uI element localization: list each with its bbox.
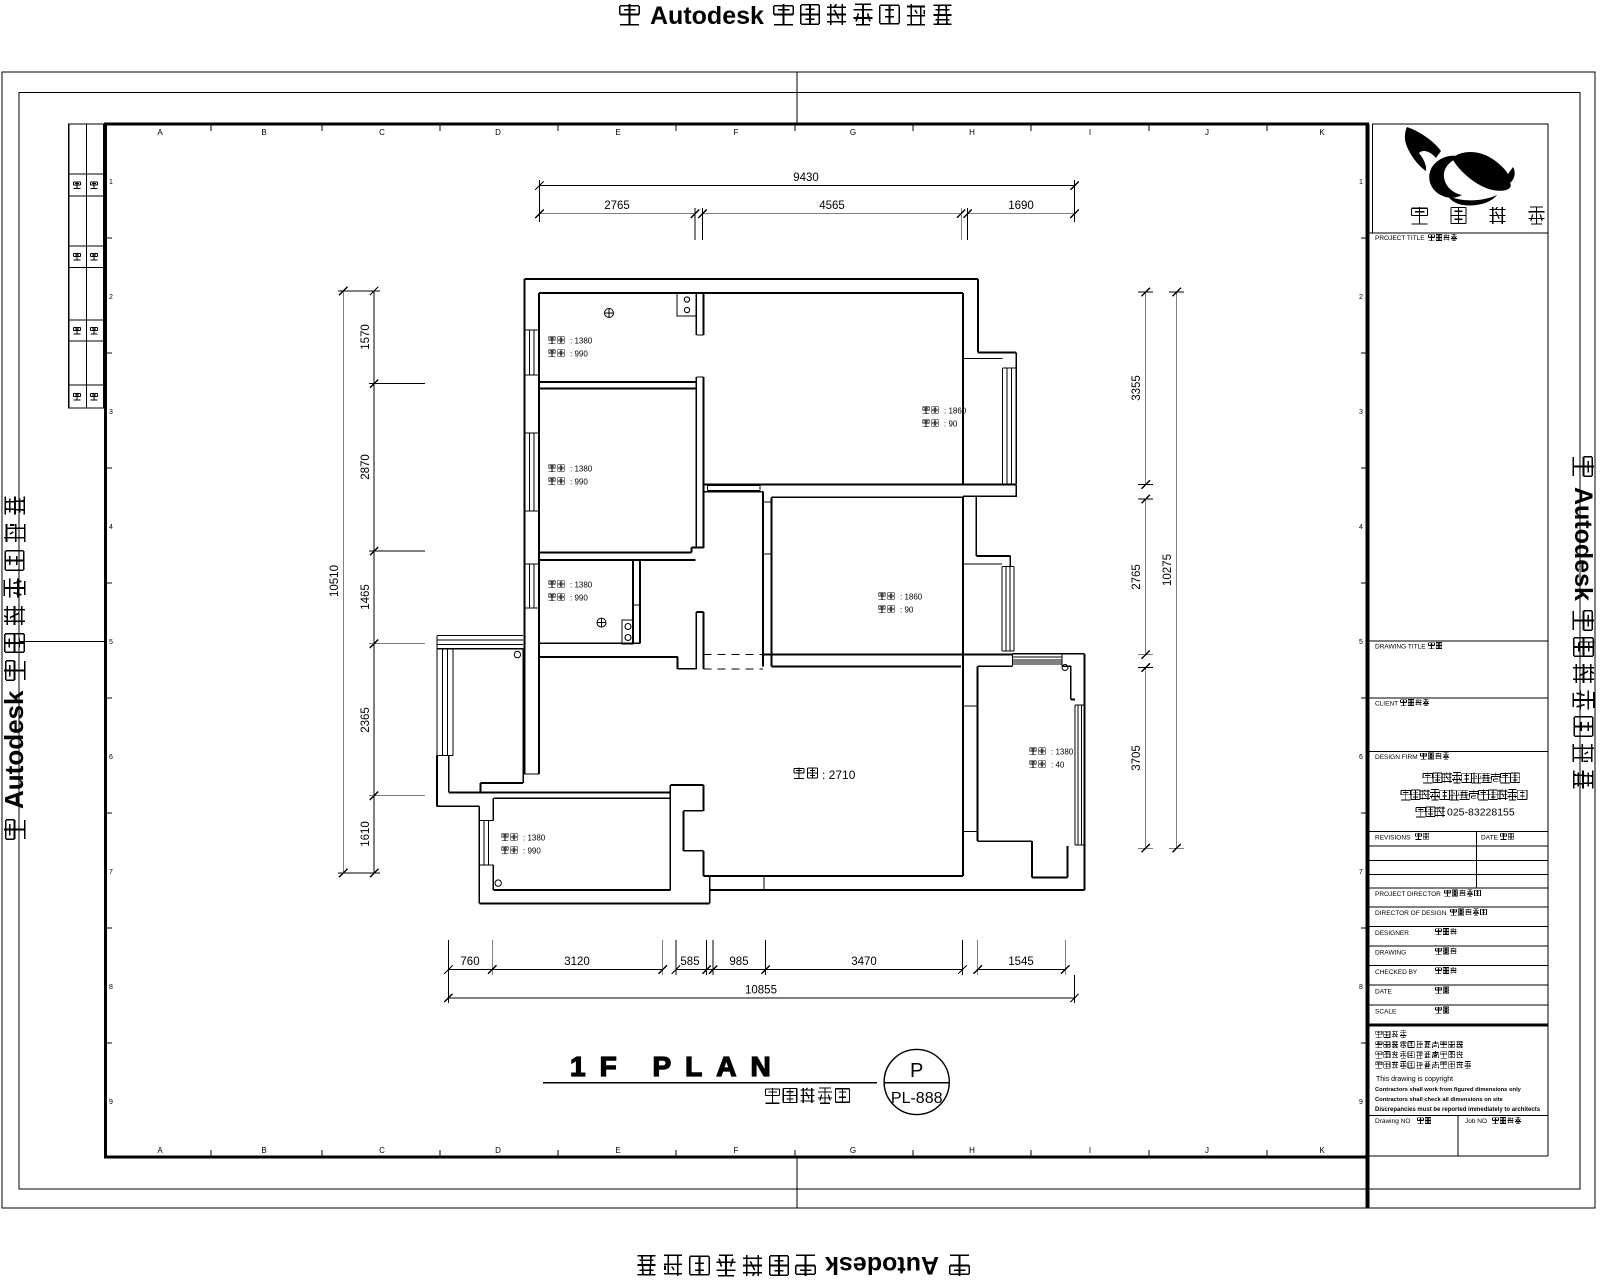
svg-text:C: C: [379, 128, 385, 137]
svg-text:J: J: [1205, 128, 1209, 137]
svg-text:Autodesk: Autodesk: [1569, 487, 1597, 601]
svg-text:7: 7: [1359, 869, 1363, 876]
svg-text:D: D: [495, 128, 501, 137]
svg-text:B: B: [261, 128, 266, 137]
svg-text:Contractors shall work from fi: Contractors shall work from figured dime…: [1375, 1087, 1522, 1093]
svg-text:E: E: [615, 128, 620, 137]
svg-text:1545: 1545: [1008, 956, 1034, 968]
svg-text:PL-888: PL-888: [891, 1090, 943, 1107]
svg-text:P: P: [910, 1060, 923, 1082]
svg-text:G: G: [850, 128, 856, 137]
svg-text:7: 7: [109, 869, 113, 876]
svg-text:6: 6: [109, 754, 113, 761]
svg-text:F: F: [734, 128, 739, 137]
svg-text:DATE: DATE: [1481, 835, 1499, 842]
svg-text:CLIENT: CLIENT: [1375, 701, 1398, 708]
svg-text:: 1380: : 1380: [1051, 748, 1074, 757]
svg-text:I: I: [1089, 128, 1091, 137]
svg-text:1690: 1690: [1008, 200, 1034, 212]
svg-text:2: 2: [1359, 294, 1363, 301]
svg-text:10855: 10855: [745, 985, 777, 997]
svg-text:10275: 10275: [1162, 554, 1174, 586]
svg-text:This drawing is copyright: This drawing is copyright: [1376, 1076, 1453, 1083]
svg-text:: 1380: : 1380: [570, 465, 593, 474]
svg-text:: 90: : 90: [944, 420, 958, 429]
svg-text:C: C: [379, 1146, 385, 1155]
svg-text:: 990: : 990: [570, 594, 588, 603]
svg-text:6: 6: [1359, 754, 1363, 761]
svg-text:: 40: : 40: [1051, 761, 1065, 770]
svg-text:DRAWING: DRAWING: [1375, 949, 1406, 956]
svg-text:1: 1: [109, 179, 113, 186]
svg-text:: 1380: : 1380: [570, 581, 593, 590]
svg-text:REVISIONS: REVISIONS: [1375, 835, 1411, 842]
svg-text:K: K: [1319, 1146, 1325, 1155]
svg-text:2765: 2765: [1131, 564, 1143, 590]
svg-text:2870: 2870: [360, 454, 372, 480]
svg-text:760: 760: [460, 956, 479, 968]
svg-text:2365: 2365: [360, 707, 372, 733]
svg-text:5: 5: [1359, 639, 1363, 646]
svg-text:9430: 9430: [793, 172, 819, 184]
svg-text:DESIGNER: DESIGNER: [1375, 930, 1409, 937]
svg-text:3705: 3705: [1131, 745, 1143, 771]
svg-text:: 1380: : 1380: [523, 834, 546, 843]
svg-text:DRAWING TITLE: DRAWING TITLE: [1375, 644, 1426, 651]
svg-text:: 1860: : 1860: [944, 407, 967, 416]
svg-text:10510: 10510: [329, 565, 341, 597]
svg-text:3: 3: [109, 409, 113, 416]
svg-text:D: D: [495, 1146, 501, 1155]
svg-text:2765: 2765: [604, 200, 630, 212]
svg-text:5: 5: [109, 639, 113, 646]
svg-text:1610: 1610: [360, 821, 372, 847]
svg-text:PROJECT TITLE: PROJECT TITLE: [1375, 235, 1425, 242]
svg-text:025-83228155: 025-83228155: [1447, 807, 1515, 819]
svg-text:8: 8: [109, 984, 113, 991]
svg-text:J: J: [1205, 1146, 1209, 1155]
svg-text:2: 2: [109, 294, 113, 301]
svg-text:: 990: : 990: [570, 478, 588, 487]
svg-text:4: 4: [1359, 524, 1363, 531]
svg-text:4: 4: [109, 524, 113, 531]
svg-text:3: 3: [1359, 409, 1363, 416]
svg-text:3355: 3355: [1131, 375, 1143, 401]
svg-text:DESIGN FIRM: DESIGN FIRM: [1375, 754, 1418, 761]
svg-text:: 1860: : 1860: [900, 593, 923, 602]
svg-text:G: G: [850, 1146, 856, 1155]
svg-text:4565: 4565: [819, 200, 845, 212]
svg-text:Job NO: Job NO: [1465, 1118, 1487, 1125]
svg-text:1F PLAN: 1F PLAN: [570, 1051, 785, 1082]
svg-text:: 1380: : 1380: [570, 337, 593, 346]
svg-text:A: A: [157, 1146, 163, 1155]
svg-text:E: E: [615, 1146, 620, 1155]
svg-text:K: K: [1319, 128, 1325, 137]
svg-text:1: 1: [1359, 179, 1363, 186]
svg-text:: 990: : 990: [570, 350, 588, 359]
svg-text:: 990: : 990: [523, 847, 541, 856]
svg-text:B: B: [261, 1146, 266, 1155]
svg-text:3120: 3120: [564, 956, 590, 968]
svg-text:1465: 1465: [360, 584, 372, 610]
svg-text:9: 9: [109, 1099, 113, 1106]
svg-text:Contractors shall check all di: Contractors shall check all dimensions o…: [1375, 1097, 1504, 1103]
svg-text:8: 8: [1359, 984, 1363, 991]
svg-text:1570: 1570: [360, 324, 372, 350]
svg-text:: 90: : 90: [900, 606, 914, 615]
svg-text:CHECKED BY: CHECKED BY: [1375, 969, 1418, 976]
svg-text:Drawing NO: Drawing NO: [1375, 1118, 1410, 1125]
svg-text:585: 585: [680, 956, 699, 968]
svg-text:9: 9: [1359, 1099, 1363, 1106]
svg-text:: 2710: : 2710: [822, 768, 856, 782]
svg-text:SCALE: SCALE: [1375, 1008, 1397, 1015]
svg-text:I: I: [1089, 1146, 1091, 1155]
svg-text:DATE: DATE: [1375, 988, 1393, 995]
svg-text:DIRECTOR OF DESIGN: DIRECTOR OF DESIGN: [1375, 910, 1447, 917]
svg-text:985: 985: [729, 956, 748, 968]
svg-text:Autodesk: Autodesk: [0, 690, 29, 809]
svg-text:Autodesk: Autodesk: [650, 2, 764, 30]
svg-text:3470: 3470: [851, 956, 877, 968]
svg-text:F: F: [734, 1146, 739, 1155]
svg-text:H: H: [969, 1146, 975, 1155]
svg-text:Autodesk: Autodesk: [825, 1251, 939, 1279]
svg-text:H: H: [969, 128, 975, 137]
svg-text:A: A: [157, 128, 163, 137]
svg-text:Discrepancies must be reported: Discrepancies must be reported immediate…: [1375, 1107, 1541, 1113]
svg-text:PROJECT DIRECTOR: PROJECT DIRECTOR: [1375, 891, 1441, 898]
